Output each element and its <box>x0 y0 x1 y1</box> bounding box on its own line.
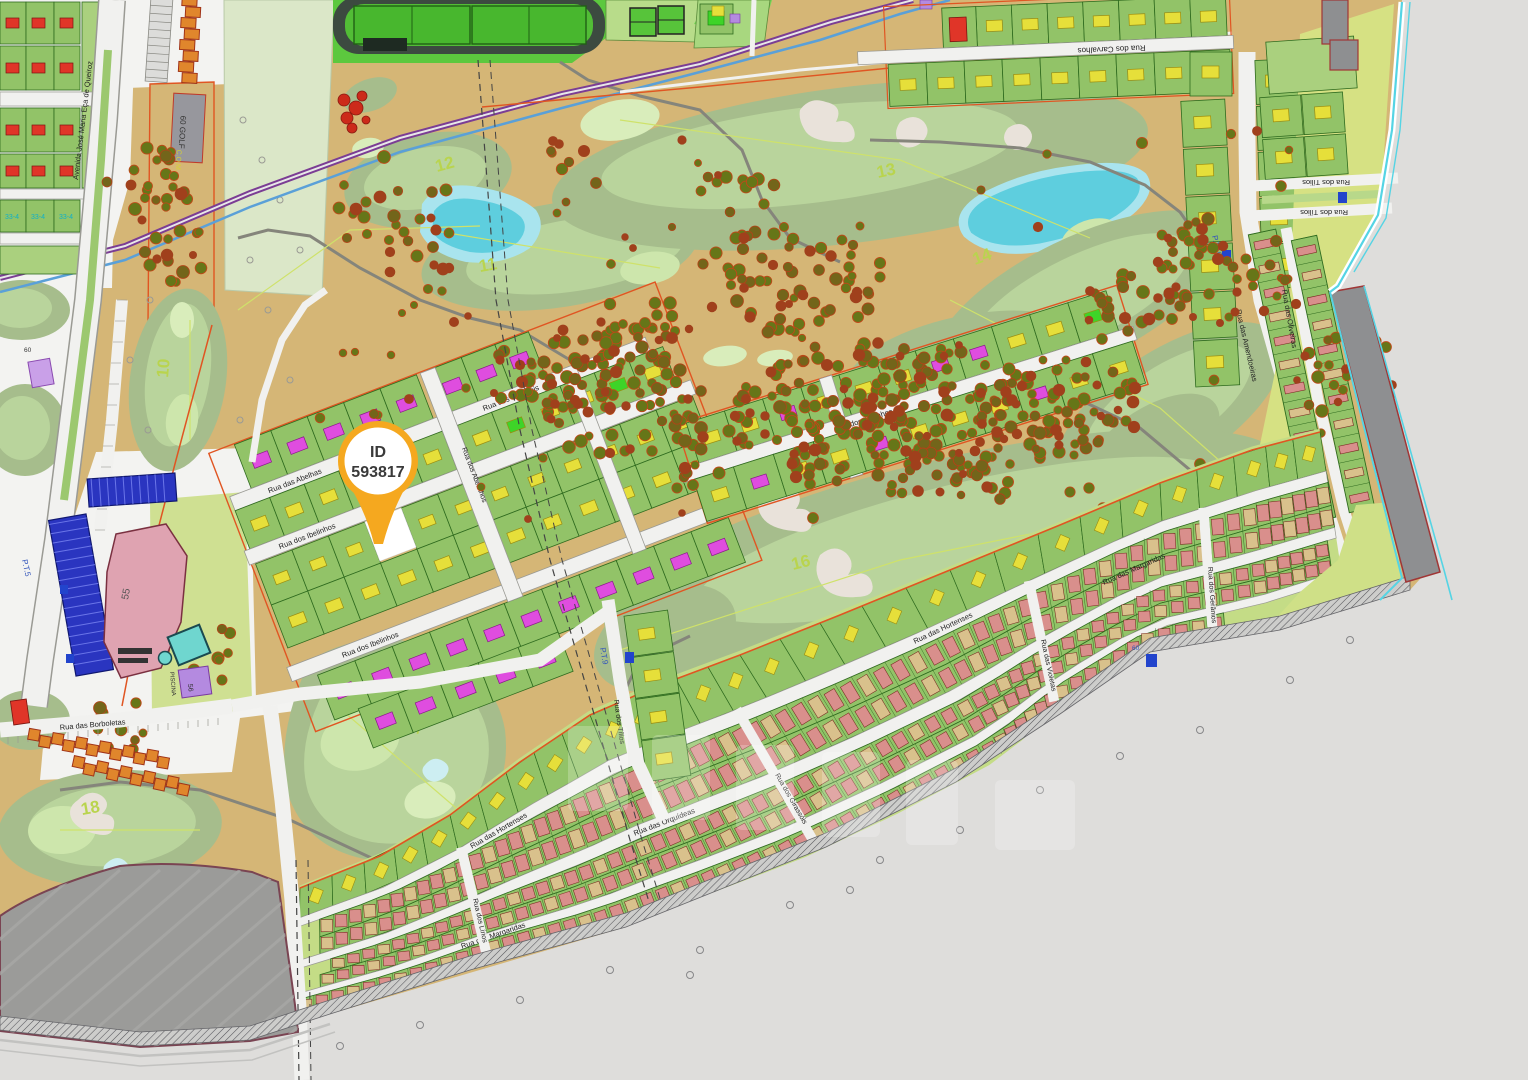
svg-text:60 GOLF: 60 GOLF <box>177 115 188 148</box>
svg-text:Rua dos Tílios: Rua dos Tílios <box>1302 178 1350 187</box>
svg-text:56: 56 <box>186 684 194 692</box>
svg-text:11: 11 <box>477 254 498 276</box>
svg-text:33-4: 33-4 <box>5 214 19 221</box>
svg-text:33-4: 33-4 <box>59 214 73 221</box>
svg-text:13: 13 <box>875 159 897 182</box>
svg-text:33-4: 33-4 <box>31 214 45 221</box>
svg-text:593817: 593817 <box>351 464 404 481</box>
svg-text:Rua dos Tílios: Rua dos Tílios <box>1300 208 1348 217</box>
svg-text:60: 60 <box>1132 645 1140 652</box>
svg-text:ID: ID <box>370 444 386 461</box>
svg-text:10: 10 <box>153 358 174 379</box>
svg-text:18: 18 <box>79 797 101 819</box>
svg-text:60: 60 <box>24 347 32 354</box>
